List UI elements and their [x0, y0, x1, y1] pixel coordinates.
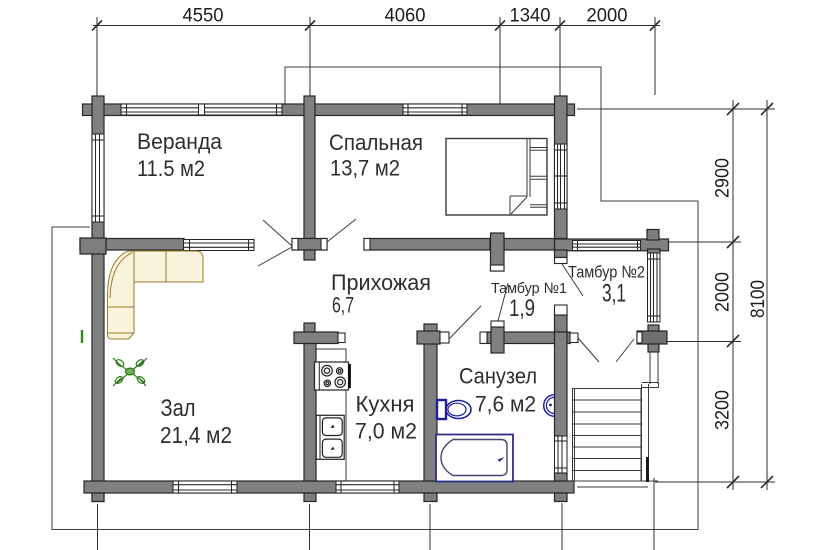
svg-text:21,4 м2: 21,4 м2 — [160, 422, 232, 448]
svg-text:4550: 4550 — [183, 5, 224, 27]
svg-text:3,1: 3,1 — [602, 280, 626, 308]
svg-text:7,6 м2: 7,6 м2 — [475, 392, 536, 417]
svg-text:Санузел: Санузел — [459, 364, 537, 389]
svg-text:2900: 2900 — [712, 158, 734, 198]
svg-text:7,0 м2: 7,0 м2 — [355, 419, 417, 444]
svg-text:11.5 м2: 11.5 м2 — [137, 156, 205, 181]
svg-text:3200: 3200 — [712, 390, 734, 430]
svg-text:2000: 2000 — [712, 272, 734, 312]
svg-text:1,9: 1,9 — [509, 295, 535, 322]
svg-text:8100: 8100 — [747, 280, 769, 318]
svg-text:Зал: Зал — [161, 395, 196, 422]
svg-text:Веранда: Веранда — [137, 129, 223, 154]
svg-text:Спальная: Спальная — [329, 130, 423, 155]
svg-text:Прихожая: Прихожая — [331, 270, 431, 295]
svg-text:4060: 4060 — [385, 5, 426, 27]
svg-text:13,7 м2: 13,7 м2 — [330, 156, 400, 181]
svg-text:1340: 1340 — [510, 5, 551, 27]
svg-text:Кухня: Кухня — [356, 392, 415, 417]
svg-text:2000: 2000 — [587, 5, 628, 27]
svg-text:6,7: 6,7 — [332, 293, 354, 318]
